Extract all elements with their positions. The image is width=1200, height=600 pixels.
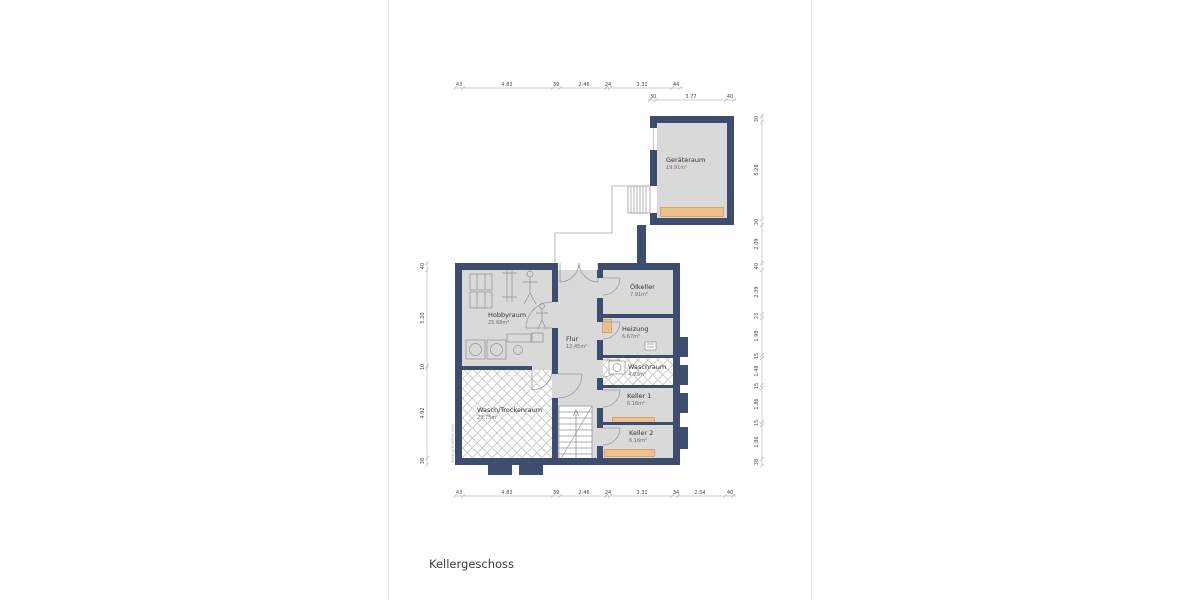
dim-label: 30	[650, 94, 656, 100]
dim-label: 4.92	[420, 407, 426, 418]
dim-label: 24	[605, 82, 611, 88]
dim-label: 3.31	[636, 490, 647, 496]
wall	[462, 366, 532, 370]
wall	[597, 314, 680, 318]
floor-title: Kellergeschoss	[429, 557, 514, 571]
dim-label: 39	[553, 490, 559, 496]
wall	[598, 263, 680, 270]
page-edge-left	[388, 0, 389, 600]
dim-label: 10	[420, 364, 426, 370]
wall	[597, 446, 603, 458]
dim-label: 15	[754, 420, 760, 426]
dim-label: 4.83	[501, 82, 512, 88]
keller2-sideboard	[604, 449, 655, 457]
watermark: www.grundriss.com	[450, 424, 455, 463]
wall	[727, 116, 734, 225]
wall	[650, 116, 657, 128]
dim-label: 2.39	[754, 286, 760, 297]
room-area: 6.16m²	[627, 401, 651, 407]
dim-label: 2.46	[578, 82, 589, 88]
wall	[455, 263, 462, 465]
room-area: 6.67m²	[622, 334, 648, 340]
dim-label: 5.28	[754, 164, 760, 175]
room-area: 6.16m²	[629, 438, 653, 444]
dim-label: 40	[727, 490, 733, 496]
window-box	[674, 427, 688, 449]
room-name: Ölkeller	[630, 284, 655, 292]
dim-label: 38	[754, 459, 760, 465]
dim-label: 43	[456, 490, 462, 496]
room-name: Geräteraum	[666, 157, 705, 165]
room-name: Flur	[566, 336, 587, 344]
room-name: Keller 1	[627, 393, 651, 401]
wall	[650, 213, 657, 225]
room-area: 19.91m²	[666, 165, 705, 171]
wall	[552, 398, 558, 458]
room-name: Hobbyraum	[488, 312, 526, 320]
connector-wall	[637, 225, 646, 263]
wall	[552, 328, 558, 374]
dim-label: 43	[456, 82, 462, 88]
room-label-keller2: Keller 2 6.16m²	[629, 430, 653, 444]
dim-label: 15	[754, 353, 760, 359]
dim-label: 38	[420, 458, 426, 464]
wall	[597, 298, 603, 322]
room-label-hobbyraum: Hobbyraum 25.68m²	[488, 312, 526, 326]
wall	[597, 355, 680, 358]
room-label-flur: Flur 12.45m²	[566, 336, 587, 350]
wall	[597, 378, 603, 390]
room-area: 25.68m²	[488, 320, 526, 326]
heizung-fixture	[602, 319, 612, 333]
dim-label: 23	[754, 313, 760, 319]
room-label-waschtrockenraum: Wasch/Trockenraum 23.75m²	[477, 407, 542, 421]
room-label-keller1: Keller 1 6.16m²	[627, 393, 651, 407]
dim-label: 1.86	[754, 436, 760, 447]
dim-label: 3.77	[685, 94, 696, 100]
window-box	[488, 463, 512, 475]
dim-label: 40	[420, 263, 426, 269]
room-label-heizung: Heizung 6.67m²	[622, 326, 648, 340]
connector-outline	[555, 186, 628, 263]
room-name: Keller 2	[629, 430, 653, 438]
dim-label: 30	[754, 116, 760, 122]
dim-label: 39	[553, 82, 559, 88]
dim-label: 2.09	[754, 238, 760, 249]
dim-label: 1.86	[754, 398, 760, 409]
dim-label: 3.31	[636, 82, 647, 88]
wall	[650, 218, 734, 225]
dim-label: 2.46	[578, 490, 589, 496]
dim-label: 2.54	[694, 490, 705, 496]
room-name: Heizung	[622, 326, 648, 334]
geraeteraum-sideboard	[660, 207, 724, 217]
room-area: 12.45m²	[566, 344, 587, 350]
dim-label: 40	[727, 94, 733, 100]
dim-label: 1.98	[754, 330, 760, 341]
window-box	[674, 365, 688, 385]
room-label-geraeteraum: Geräteraum 19.91m²	[666, 157, 705, 171]
wall	[597, 270, 603, 278]
wall	[597, 385, 680, 388]
room-area: 7.91m²	[630, 292, 655, 298]
wall	[597, 422, 680, 425]
window-box	[674, 393, 688, 413]
room-area: 23.75m²	[477, 415, 542, 421]
wall	[597, 408, 603, 428]
dim-label: 24	[605, 490, 611, 496]
dim-label: 44	[673, 82, 679, 88]
dim-label: 4.83	[501, 490, 512, 496]
wall	[552, 270, 558, 302]
dim-label: 30	[754, 219, 760, 225]
dim-label: 34	[673, 490, 679, 496]
dim-label: 40	[754, 263, 760, 269]
stairs-annex-icon	[628, 186, 650, 213]
wall	[650, 150, 657, 186]
dim-label: 5.20	[420, 312, 426, 323]
dim-label: 15	[754, 383, 760, 389]
floorplan-page: Geräteraum 19.91m² Hobbyraum 25.68m² Flu…	[0, 0, 1200, 600]
page-edge-right	[811, 0, 812, 600]
window-box	[674, 337, 688, 357]
dim-label: 1.48	[754, 365, 760, 376]
room-label-waschraum: Waschraum 4.93m²	[628, 364, 666, 378]
room-area: 4.93m²	[628, 372, 666, 378]
room-name: Wasch/Trockenraum	[477, 407, 542, 415]
room-label-oelkeller: Ölkeller 7.91m²	[630, 284, 655, 298]
window-box	[519, 463, 543, 475]
room-name: Waschraum	[628, 364, 666, 372]
wall	[455, 263, 558, 270]
wall	[650, 116, 734, 123]
